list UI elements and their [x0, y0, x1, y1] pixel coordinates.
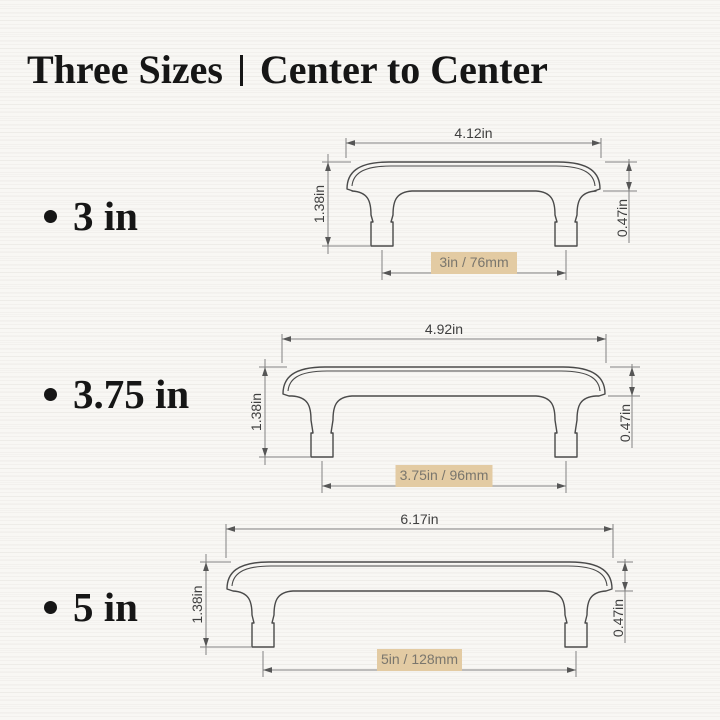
arrowhead-icon	[557, 483, 566, 489]
arrowhead-icon	[203, 562, 209, 571]
arrowhead-icon	[322, 483, 331, 489]
arrowhead-icon	[203, 638, 209, 647]
height-value: 1.38in	[311, 185, 327, 223]
dimension-height: 1.38in	[189, 554, 251, 655]
arrowhead-icon	[325, 237, 331, 246]
dimension-thickness: 0.47in	[603, 159, 637, 243]
overall-length-value: 6.17in	[400, 511, 438, 527]
arrowhead-icon	[325, 162, 331, 171]
arrowhead-icon	[567, 667, 576, 673]
handle-top-edge-line	[232, 566, 607, 586]
handle-outline	[227, 562, 612, 647]
center-to-center-value: 5in / 128mm	[381, 651, 458, 667]
arrowhead-icon	[226, 526, 235, 532]
handle-top-edge-line	[352, 166, 595, 186]
handle-drawing	[283, 367, 605, 457]
center-to-center-value: 3.75in / 96mm	[400, 467, 489, 483]
dimension-center-to-center: 3in / 76mm	[382, 250, 566, 280]
arrowhead-icon	[622, 562, 628, 571]
center-to-center-value: 3in / 76mm	[439, 254, 508, 270]
thickness-value: 0.47in	[617, 404, 633, 442]
arrowhead-icon	[262, 367, 268, 376]
overall-length-value: 4.12in	[454, 125, 492, 141]
arrowhead-icon	[282, 336, 291, 342]
arrowhead-icon	[597, 336, 606, 342]
dimension-overall-length: 4.92in	[282, 321, 606, 363]
arrowhead-icon	[629, 387, 635, 396]
arrowhead-icon	[629, 367, 635, 376]
overall-length-value: 4.92in	[425, 321, 463, 337]
handle-drawing	[227, 562, 612, 647]
dimension-overall-length: 4.12in	[346, 125, 601, 158]
dimension-diagrams: 4.12in1.38in0.47in3in / 76mm4.92in1.38in…	[0, 0, 720, 720]
size-diagram-2: 6.17in1.38in0.47in5in / 128mm	[189, 511, 633, 677]
dimension-thickness: 0.47in	[608, 364, 640, 448]
thickness-value: 0.47in	[610, 599, 626, 637]
handle-outline	[283, 367, 605, 457]
arrowhead-icon	[263, 667, 272, 673]
arrowhead-icon	[592, 140, 601, 146]
arrowhead-icon	[626, 162, 632, 171]
arrowhead-icon	[622, 582, 628, 591]
dimension-overall-length: 6.17in	[226, 511, 613, 558]
arrowhead-icon	[382, 270, 391, 276]
dimension-thickness: 0.47in	[610, 559, 633, 643]
arrowhead-icon	[626, 182, 632, 191]
size-diagram-0: 4.12in1.38in0.47in3in / 76mm	[311, 125, 637, 280]
thickness-value: 0.47in	[614, 199, 630, 237]
handle-drawing	[347, 162, 600, 246]
height-value: 1.38in	[248, 393, 264, 431]
product-dimension-infographic: Three Sizes Center to Center 3 in 3.75 i…	[0, 0, 720, 720]
size-diagram-1: 4.92in1.38in0.47in3.75in / 96mm	[248, 321, 640, 493]
handle-top-edge-line	[288, 371, 600, 391]
arrowhead-icon	[604, 526, 613, 532]
arrowhead-icon	[262, 448, 268, 457]
handle-outline	[347, 162, 600, 246]
dimension-center-to-center: 3.75in / 96mm	[322, 461, 566, 493]
dimension-height: 1.38in	[311, 154, 370, 254]
dimension-center-to-center: 5in / 128mm	[263, 649, 576, 677]
height-value: 1.38in	[189, 585, 205, 623]
arrowhead-icon	[557, 270, 566, 276]
arrowhead-icon	[346, 140, 355, 146]
